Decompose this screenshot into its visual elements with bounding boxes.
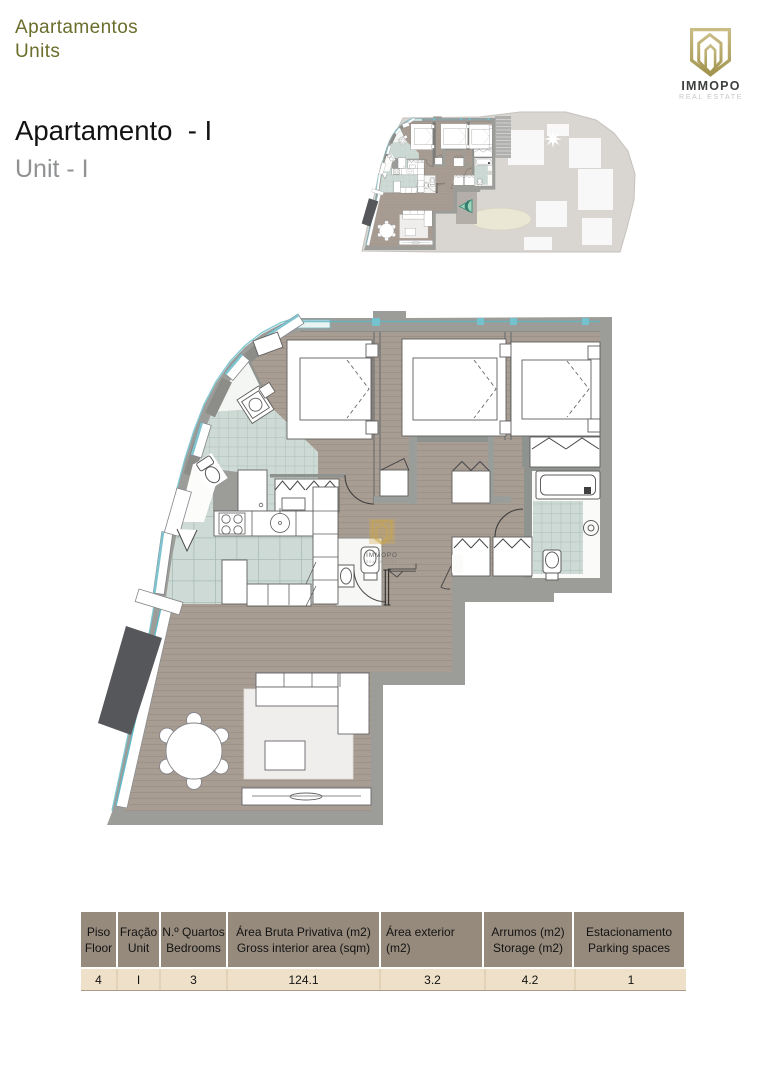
svg-text:IMMOPO: IMMOPO	[366, 552, 398, 559]
svg-text:REAL ESTATE: REAL ESTATE	[366, 560, 398, 564]
